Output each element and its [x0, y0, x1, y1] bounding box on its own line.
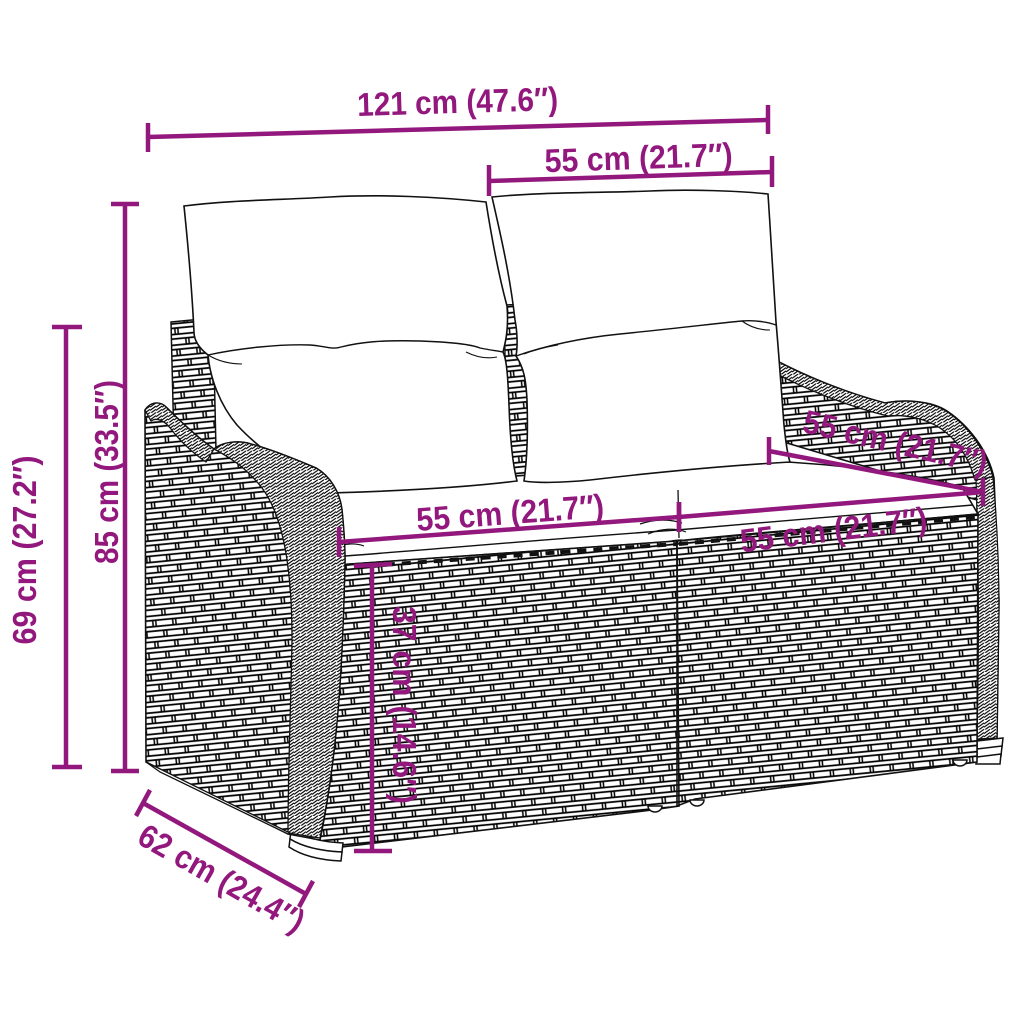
svg-text:55 cm (21.7″): 55 cm (21.7″)	[544, 136, 733, 180]
svg-text:69 cm (27.2″): 69 cm (27.2″)	[6, 456, 43, 645]
svg-text:85 cm (33.5″): 85 cm (33.5″)	[88, 380, 125, 564]
svg-text:37 cm (14.6″): 37 cm (14.6″)	[386, 606, 423, 804]
svg-text:121 cm (47.6″): 121 cm (47.6″)	[357, 80, 559, 123]
